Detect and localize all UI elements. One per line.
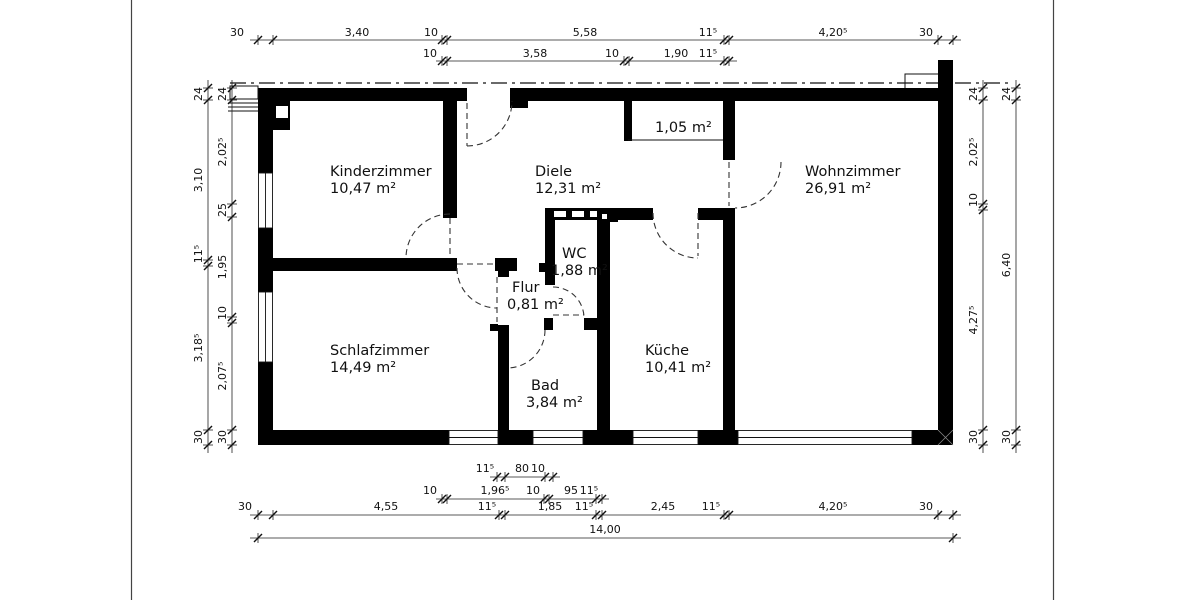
dimension-lines bbox=[203, 35, 1021, 543]
dim-label: 4,27⁵ bbox=[967, 306, 980, 335]
door-entrance bbox=[467, 101, 512, 146]
dim-label: 2,45 bbox=[651, 500, 676, 513]
dim-label: 2,02⁵ bbox=[216, 138, 229, 167]
dim-label: 10 bbox=[423, 47, 437, 60]
dim-label: 4,20⁵ bbox=[819, 26, 848, 39]
dim-label: 30 bbox=[1000, 430, 1013, 444]
dim-label: 1,96⁵ bbox=[481, 484, 510, 497]
dim-label: 11⁵ bbox=[580, 484, 598, 497]
dim-label: 2,07⁵ bbox=[216, 362, 229, 391]
room-area-kinderzimmer: 10,47 m² bbox=[330, 181, 396, 197]
dim-label: 10 bbox=[531, 462, 545, 475]
dim-label: 25 bbox=[216, 203, 229, 217]
room-name-schlafzimmer: Schlafzimmer bbox=[330, 343, 429, 359]
room-area-kueche: 10,41 m² bbox=[645, 360, 711, 376]
dim-label: 11⁵ bbox=[192, 245, 205, 263]
dim-label: 11⁵ bbox=[702, 500, 720, 513]
room-name-flur: Flur bbox=[512, 280, 540, 296]
dim-label: 4,55 bbox=[374, 500, 399, 513]
dim-label: 1,85 bbox=[538, 500, 563, 513]
floorplan-drawing: Kinderzimmer 10,47 m² Diele 12,31 m² Woh… bbox=[0, 0, 1200, 600]
dim-label: 24 bbox=[192, 87, 205, 101]
dim-label: 1,90 bbox=[664, 47, 689, 60]
dim-label: 10 bbox=[216, 306, 229, 320]
door-bad bbox=[507, 330, 545, 368]
room-area-flur: 0,81 m² bbox=[507, 297, 564, 313]
room-area-abstell: 1,05 m² bbox=[655, 120, 712, 136]
dim-label: 10 bbox=[424, 26, 438, 39]
room-name-kinderzimmer: Kinderzimmer bbox=[330, 164, 432, 180]
room-area-bad: 3,84 m² bbox=[526, 395, 583, 411]
room-name-wohnzimmer: Wohnzimmer bbox=[805, 164, 901, 180]
room-name-wc: WC bbox=[562, 246, 586, 262]
dim-label: 30 bbox=[230, 26, 244, 39]
dim-label: 10 bbox=[423, 484, 437, 497]
dim-label: 11⁵ bbox=[699, 26, 717, 39]
room-name-kueche: Küche bbox=[645, 343, 689, 359]
dim-label: 6,40 bbox=[1000, 253, 1013, 278]
dim-label: 30 bbox=[216, 430, 229, 444]
dim-label: 11⁵ bbox=[575, 500, 593, 513]
door-kinderzimmer bbox=[406, 214, 450, 258]
room-area-diele: 12,31 m² bbox=[535, 181, 601, 197]
dim-label: 3,10 bbox=[192, 168, 205, 193]
dim-label: 24 bbox=[967, 87, 980, 101]
dim-label: 30 bbox=[238, 500, 252, 513]
door-kueche bbox=[653, 213, 698, 258]
dim-label: 24 bbox=[1000, 87, 1013, 101]
door-schlafzimmer bbox=[457, 264, 497, 322]
dim-label: 30 bbox=[919, 500, 933, 513]
dim-label: 30 bbox=[192, 430, 205, 444]
dim-label: 80 bbox=[515, 462, 529, 475]
dim-label: 2,02⁵ bbox=[967, 138, 980, 167]
dim-label: 30 bbox=[919, 26, 933, 39]
dim-label: 10 bbox=[605, 47, 619, 60]
dim-label: 24 bbox=[216, 87, 229, 101]
dim-label: 1,95 bbox=[216, 255, 229, 280]
room-area-schlafzimmer: 14,49 m² bbox=[330, 360, 396, 376]
dim-label: 11⁵ bbox=[478, 500, 496, 513]
door-wohnzimmer bbox=[729, 162, 781, 208]
dim-label: 95 bbox=[564, 484, 578, 497]
dim-label: 11⁵ bbox=[699, 47, 717, 60]
dim-label-total-width: 14,00 bbox=[589, 523, 621, 536]
floorplan-sheet: Kinderzimmer 10,47 m² Diele 12,31 m² Woh… bbox=[0, 0, 1200, 600]
walls bbox=[258, 60, 953, 445]
dim-label: 4,20⁵ bbox=[819, 500, 848, 513]
dim-label: 30 bbox=[967, 430, 980, 444]
dim-label: 10 bbox=[526, 484, 540, 497]
room-area-wohnzimmer: 26,91 m² bbox=[805, 181, 871, 197]
dim-label: 11⁵ bbox=[476, 462, 494, 475]
room-area-wc: 1,88 m² bbox=[551, 263, 608, 279]
room-name-bad: Bad bbox=[531, 378, 559, 394]
dim-label: 3,40 bbox=[345, 26, 370, 39]
dim-label: 5,58 bbox=[573, 26, 598, 39]
dim-label: 3,58 bbox=[523, 47, 548, 60]
dim-label: 10 bbox=[967, 193, 980, 207]
dim-label: 3,18⁵ bbox=[192, 334, 205, 363]
room-name-diele: Diele bbox=[535, 164, 572, 180]
